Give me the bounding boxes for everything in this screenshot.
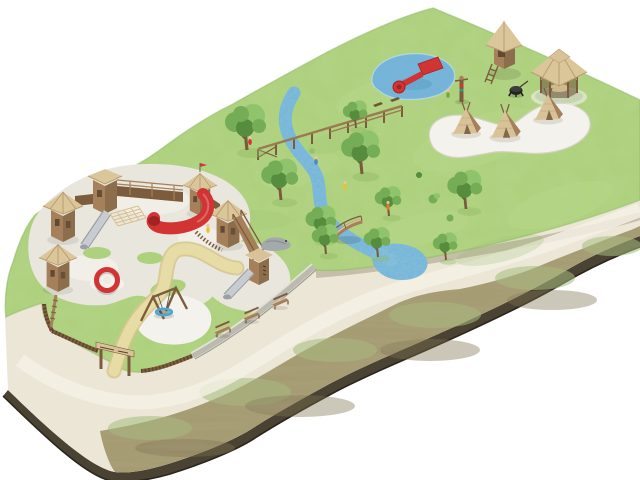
child-figure	[206, 224, 210, 233]
playground-park-illustration	[0, 0, 640, 480]
child-figure	[446, 89, 450, 98]
child-figure	[314, 156, 318, 165]
child-figure	[248, 136, 252, 145]
square-tower	[88, 169, 122, 214]
child-figure	[386, 201, 390, 210]
child-figure	[343, 181, 347, 190]
